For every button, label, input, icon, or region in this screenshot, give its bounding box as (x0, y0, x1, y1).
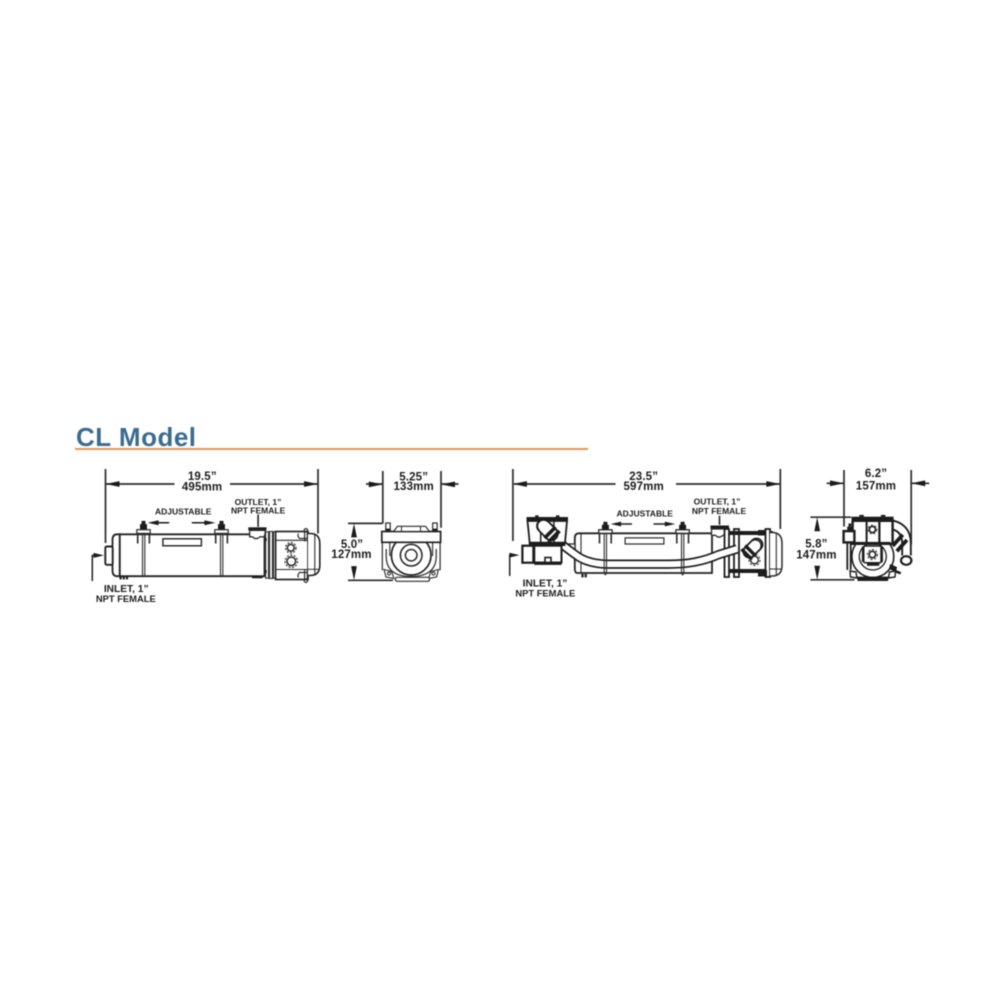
svg-text:133mm: 133mm (394, 481, 434, 493)
svg-text:597mm: 597mm (624, 481, 664, 493)
svg-text:ADJUSTABLE: ADJUSTABLE (616, 508, 673, 518)
svg-text:6.2”: 6.2” (865, 468, 887, 480)
svg-text:157mm: 157mm (856, 481, 896, 493)
svg-text:NPT FEMALE: NPT FEMALE (692, 506, 747, 516)
svg-text:NPT FEMALE: NPT FEMALE (515, 588, 575, 599)
svg-text:NPT FEMALE: NPT FEMALE (231, 506, 286, 516)
svg-text:ADJUSTABLE: ADJUSTABLE (155, 506, 212, 516)
svg-text:CL Model: CL Model (76, 422, 197, 452)
svg-text:147mm: 147mm (796, 549, 836, 561)
svg-text:127mm: 127mm (331, 549, 371, 561)
svg-text:495mm: 495mm (182, 481, 222, 493)
svg-text:NPT FEMALE: NPT FEMALE (96, 593, 156, 604)
